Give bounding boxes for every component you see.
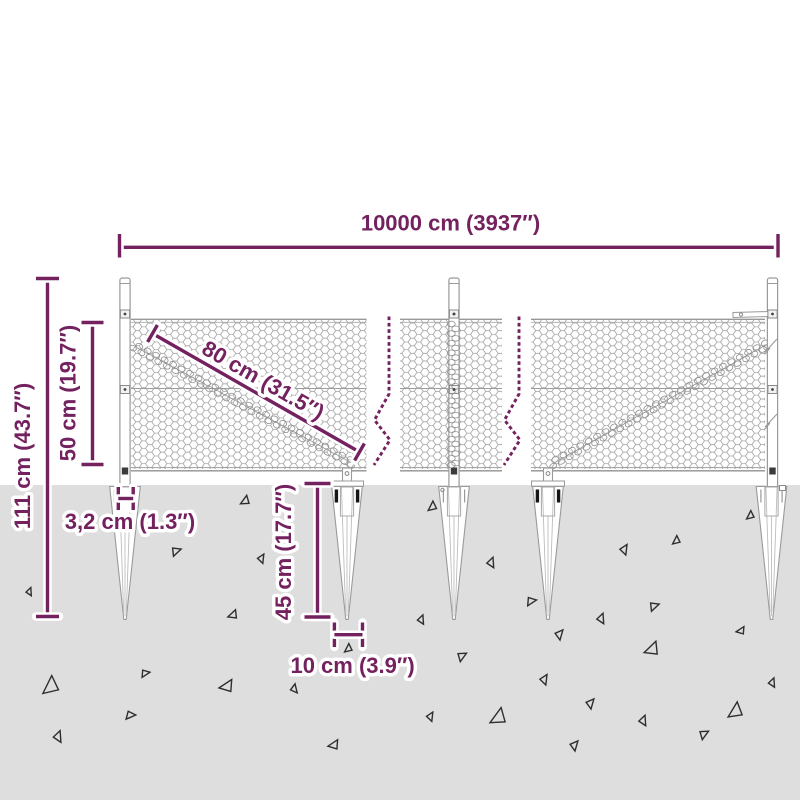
svg-text:50 cm (19.7″): 50 cm (19.7″) (56, 325, 81, 462)
svg-text:10000 cm (3937″): 10000 cm (3937″) (361, 211, 540, 236)
svg-text:3,2 cm (1.3″): 3,2 cm (1.3″) (65, 509, 195, 534)
svg-text:111 cm (43.7″): 111 cm (43.7″) (10, 383, 35, 529)
svg-text:10 cm (3.9″): 10 cm (3.9″) (290, 653, 414, 678)
svg-text:45 cm (17.7″): 45 cm (17.7″) (271, 484, 296, 621)
